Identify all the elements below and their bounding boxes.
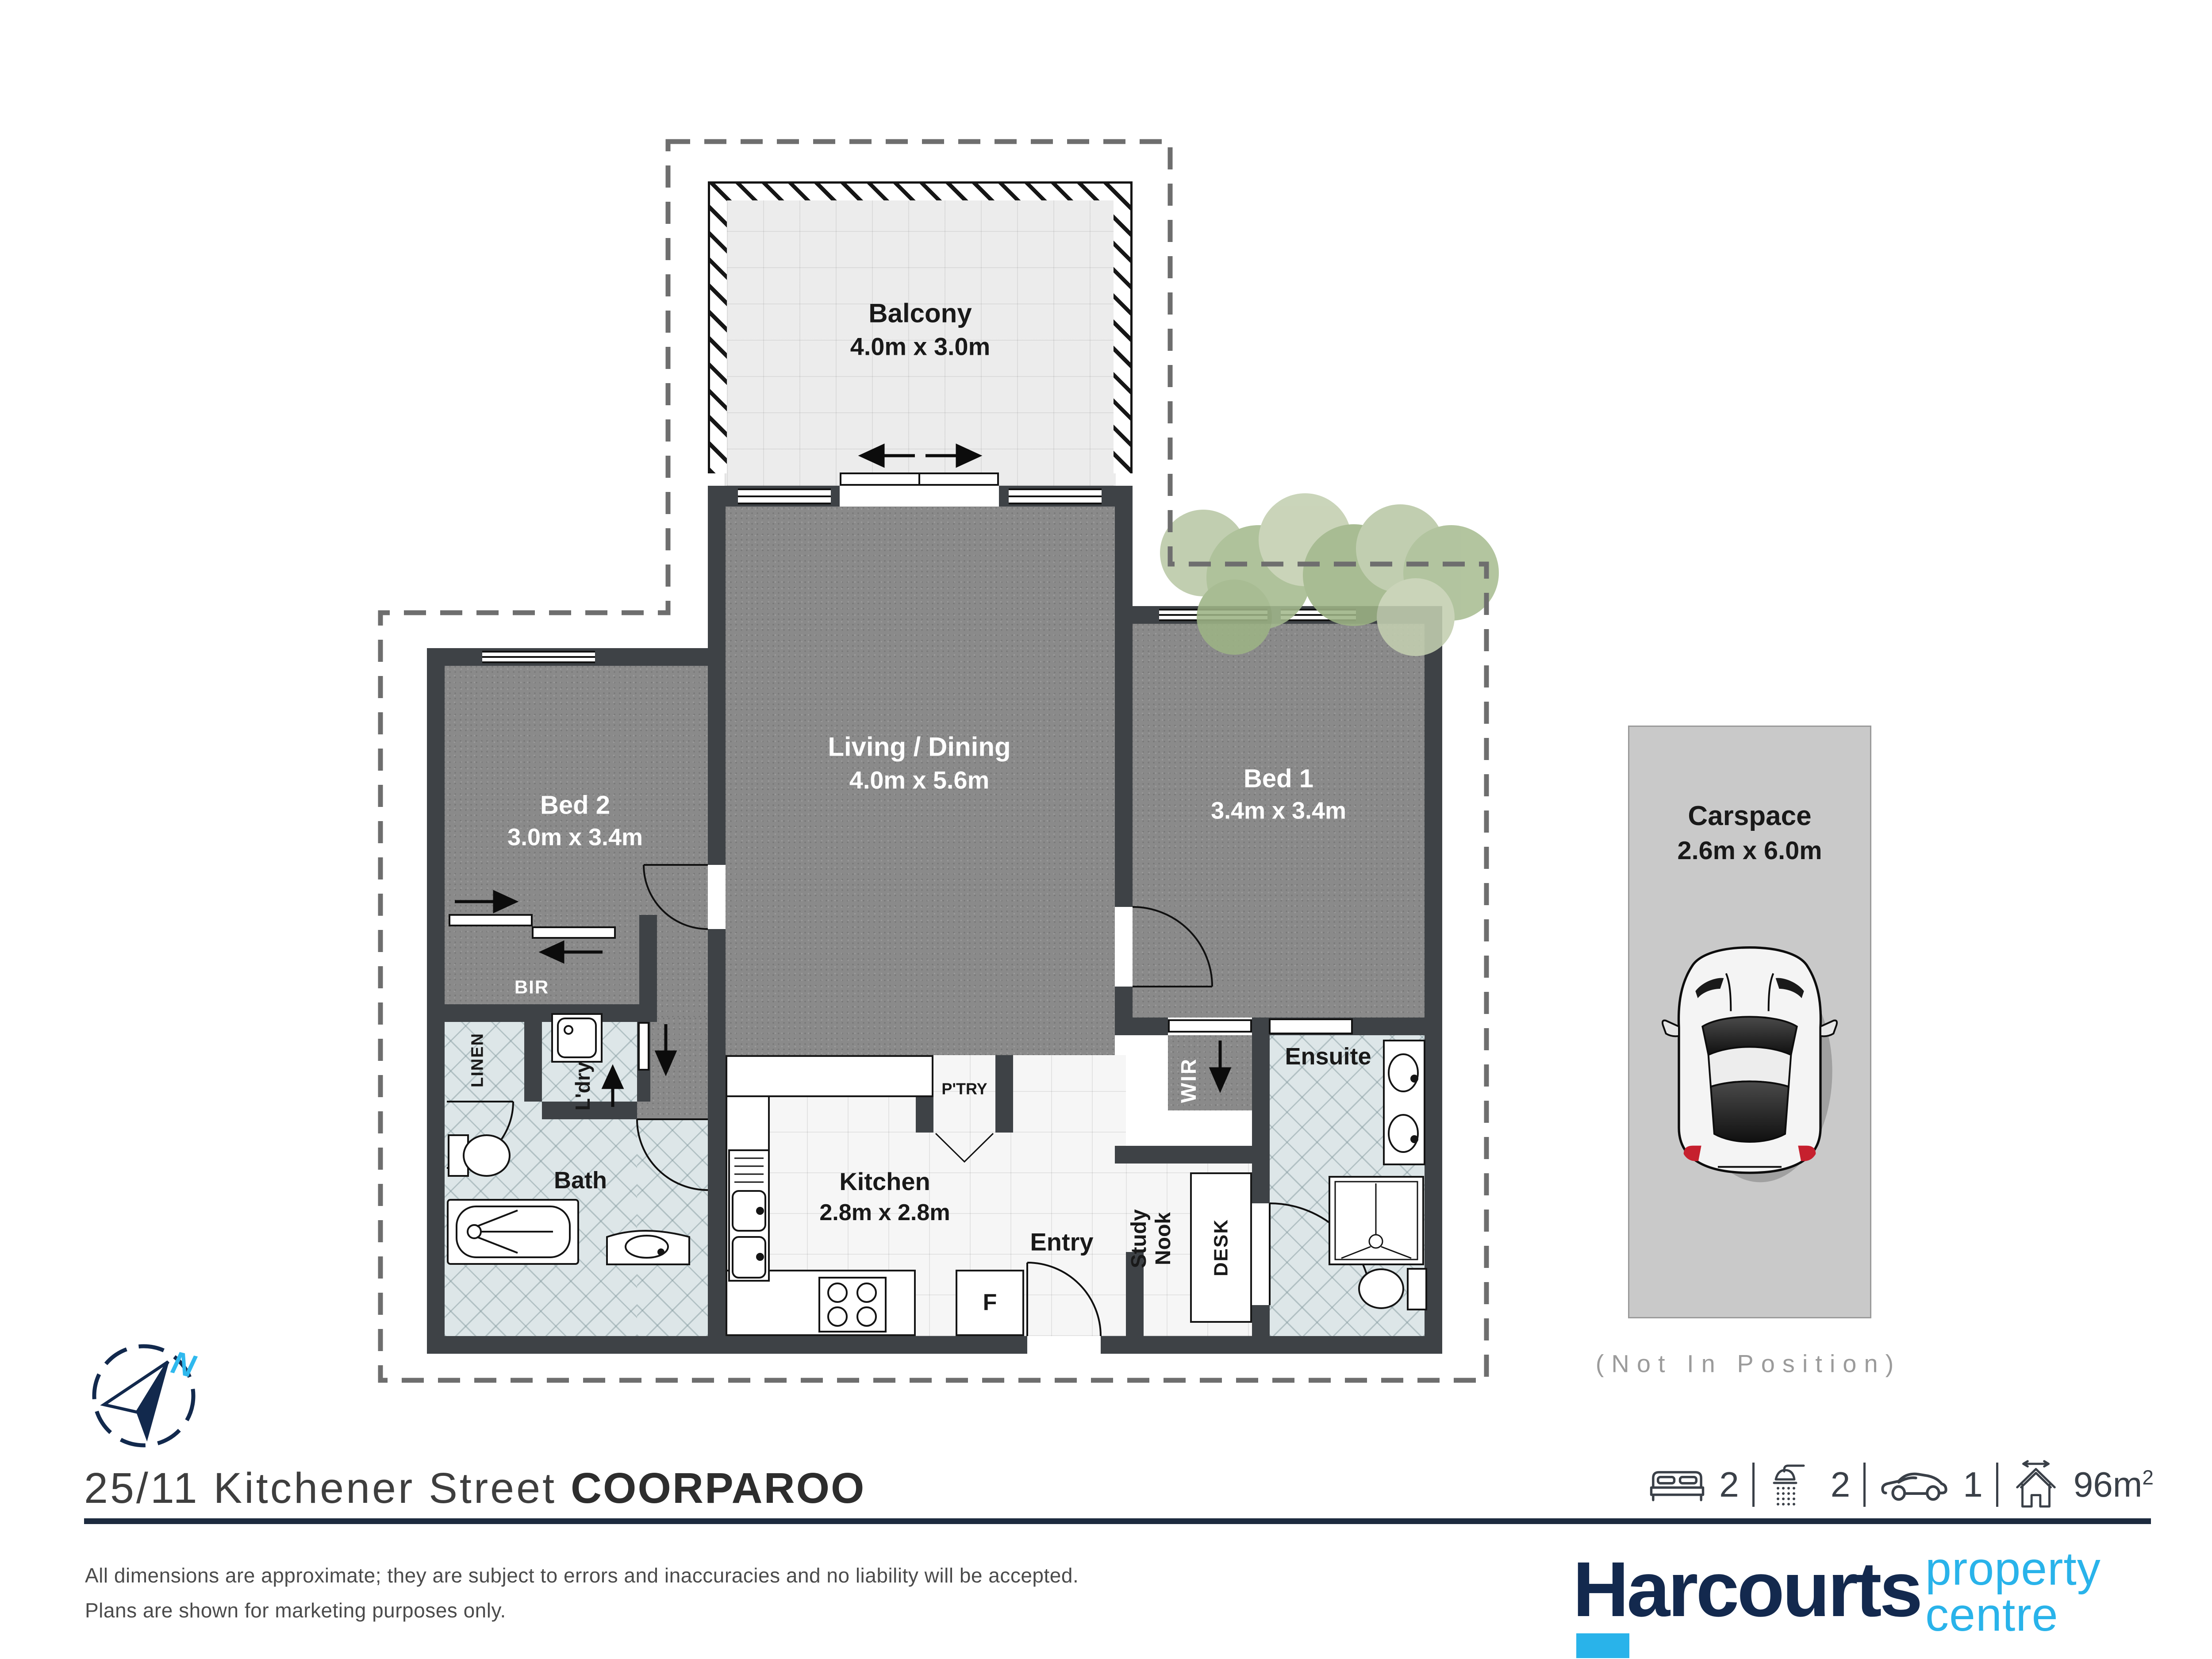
- bathtub: [448, 1200, 578, 1264]
- summary-divider: [1863, 1463, 1866, 1507]
- summary-divider: [1752, 1463, 1755, 1507]
- entry-label: Entry: [1030, 1226, 1093, 1259]
- wir-label: WIR: [1175, 1058, 1203, 1103]
- floorplan-page: F DESK: [0, 0, 2212, 1659]
- balcony-label: Balcony4.0m x 3.0m: [850, 296, 990, 363]
- address-suburb: COORPAROO: [571, 1464, 866, 1512]
- linen-label: LINEN: [467, 1033, 488, 1087]
- bir-label: BIR: [515, 975, 549, 1000]
- summary-divider: [1996, 1463, 1998, 1507]
- washing-machine: [552, 1014, 602, 1062]
- plan-linework: N: [0, 0, 2212, 1659]
- bed2-door-arc: [644, 865, 708, 929]
- laundry-label: L'dry: [570, 1062, 596, 1111]
- bed-icon: [1648, 1465, 1706, 1504]
- bath-label: Bath: [554, 1165, 607, 1196]
- property-summary: 2 2 1 96m: [1648, 1458, 2154, 1511]
- divider-rule: [84, 1518, 2151, 1524]
- beds-count: 2: [1719, 1464, 1739, 1505]
- ensuite-vanity: [1384, 1041, 1425, 1164]
- shower-icon: [1768, 1463, 1817, 1507]
- bed2-label: Bed 23.0m x 3.4m: [507, 788, 643, 853]
- disclaimer-line2: Plans are shown for marketing purposes o…: [85, 1593, 1079, 1628]
- cars-count: 1: [1963, 1464, 1983, 1505]
- house-area-icon: [2012, 1459, 2060, 1511]
- compass-north-label: N: [168, 1344, 200, 1385]
- address-street: 25/11 Kitchener Street: [84, 1464, 557, 1512]
- kitchen-sink: [729, 1150, 769, 1281]
- garden-plants: [1160, 493, 1499, 656]
- brand-logo-harcourts: Harcourts: [1573, 1545, 1920, 1634]
- bed1-door-arc: [1133, 907, 1212, 987]
- bath-vanity: [607, 1231, 689, 1264]
- ensuite-label: Ensuite: [1285, 1041, 1371, 1072]
- living-label: Living / Dining4.0m x 5.6m: [828, 730, 1010, 797]
- study-nook-label: Study Nook: [1127, 1209, 1175, 1268]
- brand-logo-property: property: [1925, 1542, 2101, 1596]
- cooktop: [819, 1278, 886, 1332]
- property-address: 25/11 Kitchener Street COORPAROO: [84, 1463, 865, 1513]
- ensuite-toilet: [1359, 1269, 1426, 1310]
- floor-area: 96m2: [2074, 1464, 2154, 1505]
- brand-logo-centre: centre: [1925, 1588, 2058, 1642]
- bath-door-arc: [637, 1119, 708, 1190]
- showers-count: 2: [1831, 1464, 1851, 1505]
- shower: [1329, 1177, 1423, 1264]
- disclaimer: All dimensions are approximate; they are…: [85, 1558, 1079, 1628]
- pantry-label: P'TRY: [941, 1079, 987, 1100]
- disclaimer-line1: All dimensions are approximate; they are…: [85, 1558, 1079, 1593]
- toilet: [449, 1135, 510, 1176]
- carspace-label: Carspace2.6m x 6.0m: [1678, 799, 1822, 868]
- carspace: Carspace2.6m x 6.0m: [1628, 726, 1871, 1318]
- car-icon: [1879, 1466, 1950, 1504]
- pantry-fold-door: [936, 1133, 993, 1162]
- bed1-label: Bed 13.4m x 3.4m: [1211, 762, 1346, 826]
- car-top-view: [1661, 939, 1838, 1187]
- brand-logo-block: [1576, 1633, 1629, 1658]
- entry-door-arc: [1027, 1263, 1101, 1336]
- carspace-note: (Not In Position): [1596, 1349, 1901, 1378]
- compass-icon: N: [94, 1344, 200, 1445]
- kitchen-label: Kitchen2.8m x 2.8m: [819, 1166, 950, 1228]
